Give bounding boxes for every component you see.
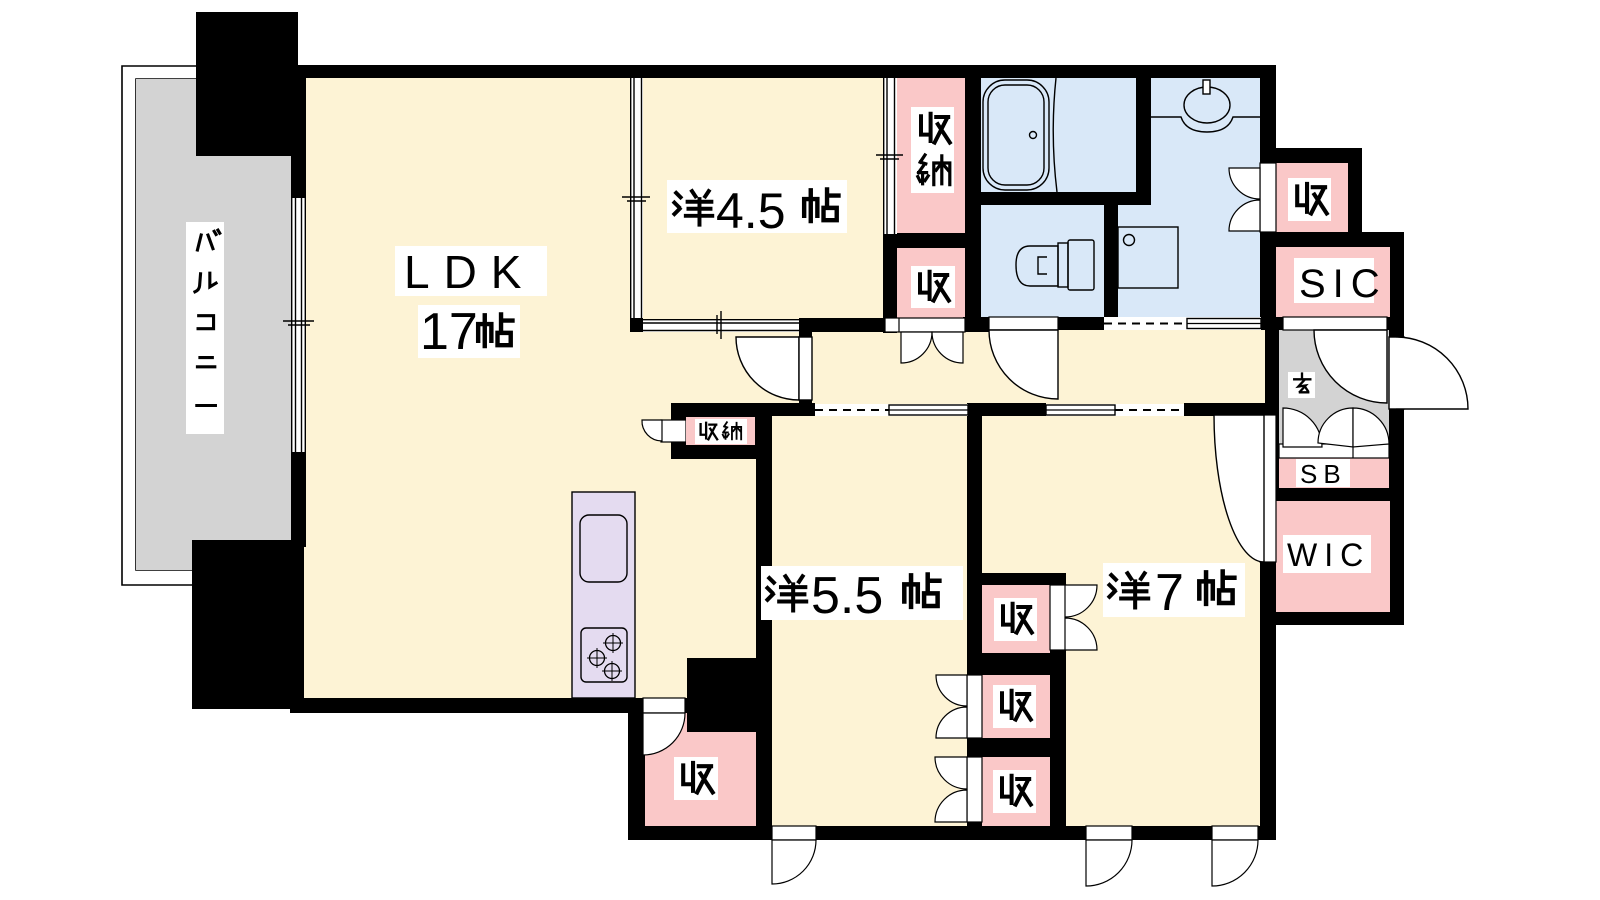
svg-text:WIC: WIC <box>1287 537 1370 573</box>
svg-text:4.5: 4.5 <box>716 183 786 239</box>
svg-text:SIC: SIC <box>1299 262 1387 306</box>
svg-text:SB: SB <box>1300 459 1347 489</box>
svg-text:17: 17 <box>420 303 478 361</box>
svg-text:7: 7 <box>1155 564 1184 622</box>
svg-text:5.5: 5.5 <box>811 567 883 625</box>
svg-text:LDK: LDK <box>404 246 535 298</box>
